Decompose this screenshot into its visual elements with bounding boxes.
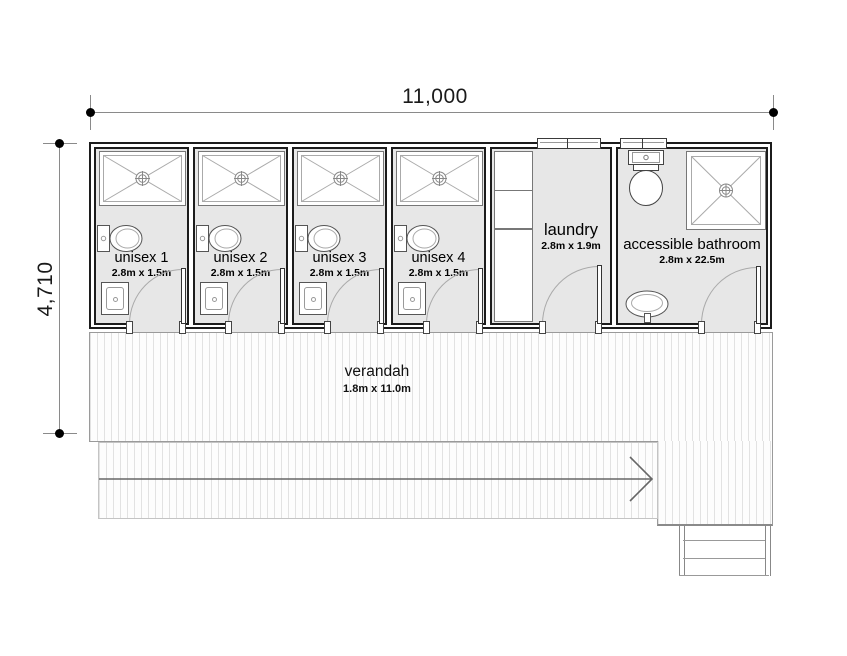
sink-icon: [299, 282, 327, 315]
room-label: laundry 2.8m x 1.9m: [532, 221, 610, 253]
stairs-bottom-edge: [679, 575, 769, 576]
room-name: accessible bathroom: [622, 236, 762, 253]
sink-icon: [398, 282, 426, 315]
door-opening: [329, 321, 381, 332]
door-leaf: [597, 265, 602, 324]
stairs-right-rail: [765, 526, 771, 576]
shower-icon: [297, 151, 384, 206]
door-leaf: [280, 268, 285, 324]
door-leaf: [181, 268, 186, 324]
accessible-toilet-icon: [624, 149, 668, 209]
shower-icon: [198, 151, 285, 206]
sink-icon: [200, 282, 228, 315]
verandah-landing: [657, 441, 773, 526]
laundry-cabinet: [494, 151, 533, 191]
top-dimension-dot-right: [769, 108, 778, 117]
stairs-tread-2: [683, 558, 765, 559]
room-name: laundry: [532, 221, 610, 239]
door-opening: [230, 321, 282, 332]
door-opening: [428, 321, 480, 332]
door-threshold: [225, 321, 232, 334]
room-name: unisex 2: [195, 250, 286, 266]
left-dimension-dot-top: [55, 139, 64, 148]
verandah-name: verandah: [297, 363, 457, 380]
left-dimension-label: 4,710: [34, 230, 58, 348]
stairs-tread-1: [683, 540, 765, 541]
room-name: unisex 3: [294, 250, 385, 266]
door-threshold: [539, 321, 546, 334]
room-dims: 2.8m x 1.9m: [532, 241, 610, 253]
direction-arrow-icon: [96, 454, 658, 504]
room-label: accessible bathroom 2.8m x 22.5m: [622, 236, 762, 267]
room-dims: 2.8m x 22.5m: [622, 255, 762, 267]
top-dimension-label: 11,000: [335, 85, 535, 109]
door-leaf: [478, 268, 483, 324]
shower-icon: [99, 151, 186, 206]
top-dimension-line: [90, 112, 773, 113]
room-name: unisex 4: [393, 250, 484, 266]
door-threshold: [126, 321, 133, 334]
window: [620, 138, 667, 149]
room-name: unisex 1: [96, 250, 187, 266]
door-threshold: [698, 321, 705, 334]
verandah-label: verandah 1.8m x 11.0m: [297, 363, 457, 395]
left-dimension-line: [59, 143, 60, 433]
floor-plan: 11,000 4,710 verandah 1.8m x 11.0m: [0, 0, 847, 656]
window: [537, 138, 601, 149]
door-opening: [131, 321, 183, 332]
basin-icon: [625, 290, 671, 323]
sink-icon: [101, 282, 129, 315]
door-opening: [703, 321, 757, 332]
door-opening: [544, 321, 599, 332]
shower-icon: [396, 151, 483, 206]
left-dimension-dot-bottom: [55, 429, 64, 438]
door-leaf: [379, 268, 384, 324]
door-threshold: [423, 321, 430, 334]
door-threshold: [324, 321, 331, 334]
verandah-dims: 1.8m x 11.0m: [297, 383, 457, 395]
stairs-left-rail: [679, 526, 685, 576]
laundry-bench: [494, 229, 533, 322]
shower-icon: [686, 151, 766, 230]
door-leaf: [756, 266, 761, 324]
top-dimension-dot-left: [86, 108, 95, 117]
laundry-cabinet: [494, 190, 533, 229]
